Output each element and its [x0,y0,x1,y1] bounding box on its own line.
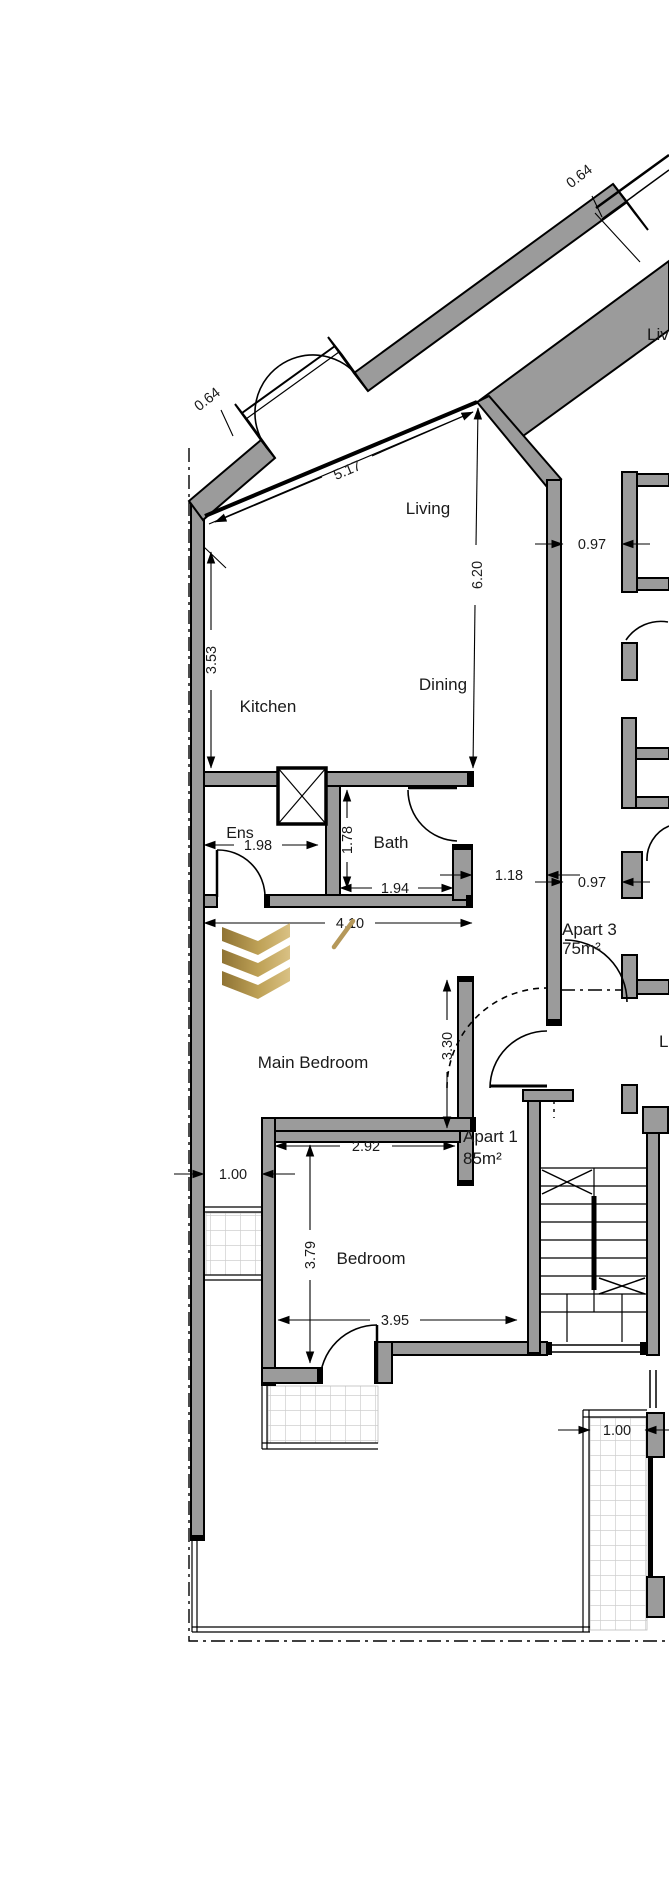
topright-glazing-1 [596,155,669,208]
label-dining: Dining [419,675,467,694]
bedroom-door-swing [320,1325,377,1382]
hall-north-wall [265,895,472,907]
dim-bedroom-span: 3.95 [381,1313,409,1329]
stair-east-wall [647,1107,659,1355]
apart3-stub-3 [622,643,637,680]
bath-east-wall [453,845,472,900]
label-ens: Ens [226,825,254,842]
ens-door-swing [217,850,265,897]
wall-cap [547,1019,561,1025]
label-bedroom: Bedroom [337,1249,406,1268]
label-apart3-name: Apart 3 [562,920,617,939]
apart3-stub-2 [637,578,669,590]
wall-cap [191,1535,204,1540]
dim-terrace-strip: 1.00 [603,1423,631,1439]
bath-door-swing [408,790,457,841]
dim-entry-wall: 3.30 [440,1032,456,1060]
right-terrace-hatch [590,1418,647,1630]
dim-gap-lower: 0.97 [578,875,606,891]
shaft-side-wall [326,786,340,895]
stair-west-wall [528,1101,540,1353]
floor-plan-page: 0.64 0.64 5.17 3.53 6.20 0.97 1.98 1.78 … [0,0,669,1899]
label-neighbor-living-mid: Li [659,1032,669,1051]
bedroom-terrace-hatch [268,1386,378,1443]
entry-step-wall [523,1090,573,1101]
wall-cap [467,772,473,786]
dim-hall-gap: 1.18 [495,868,523,884]
party-wall-vertical [547,480,561,1025]
bedroom-south-wall [262,1368,322,1383]
apartment-entry-door-swing [490,1031,547,1088]
apart3-stub-8 [622,1085,637,1113]
floor-plan-svg: 0.64 0.64 5.17 3.53 6.20 0.97 1.98 1.78 … [0,0,669,1899]
apart3-stub-7 [637,980,669,994]
ventilation-shaft [278,768,326,824]
apart3-wall-mid [622,718,636,808]
dim-living-length: 6.20 [470,561,486,590]
wall-cap [640,1342,647,1355]
label-kitchen: Kitchen [240,697,297,716]
terrace-east-wall [648,1457,653,1577]
bedroom-west-wall [262,1118,275,1385]
main-bedroom-south-wall [262,1118,475,1131]
kitchen-south-wall-left [204,772,278,786]
label-apart1-area: 85m² [463,1149,502,1168]
wall-cap [466,895,472,907]
dim-side-strip: 1.00 [219,1167,247,1183]
label-main-bedroom: Main Bedroom [258,1053,369,1072]
apart3-stub-6 [622,852,642,898]
south-hall-wall [392,1342,547,1355]
apart3-stub-1 [637,474,669,486]
apart3-bay-wall [622,472,637,592]
ens-south-wall-left [204,895,217,907]
label-neighbor-living-top: Liv [647,325,669,344]
northwest-wall-band-sw [189,440,275,520]
dim-gap-upper: 0.97 [578,537,606,553]
dim-bath-depth: 1.78 [340,826,356,854]
label-apart1-name: Apart 1 [463,1127,518,1146]
stair-corner-block [643,1107,668,1133]
wall-cap [458,977,473,982]
wall-cap [453,845,472,850]
terrace-pillar-upper [647,1413,664,1457]
dim-kitchen-side: 3.53 [204,646,220,674]
terrace-pillar-lower [647,1577,664,1617]
dim-offset-top: 0.64 [564,162,596,192]
label-apart3-area: 75m² [562,939,601,958]
porch-pillar-right [328,337,368,391]
side-balcony-hatch [206,1213,262,1275]
logo-chevrons [222,923,290,999]
apart3-stub-4 [636,748,669,759]
wall-cap [547,1342,552,1355]
apart3-door-swing-2 [647,826,669,861]
entrance-double-door-leaf-left [255,366,279,452]
terraces [192,1207,647,1632]
kitchen-south-wall-right [326,772,473,786]
label-bath: Bath [374,833,409,852]
west-wall [191,505,204,1540]
dim-offset-entrance: 0.64 [192,385,224,415]
wall-cap [458,1180,473,1185]
porch-back-glazing-2 [246,352,339,419]
staircase [540,1168,647,1342]
apart3-door-swing-1 [626,621,668,640]
dim-bedroom-depth: 3.79 [303,1241,319,1269]
label-living: Living [406,499,450,518]
dim-bath-width: 1.94 [381,881,409,897]
dim-bedroom-width: 2.92 [352,1139,380,1155]
apart3-wall-low [622,955,637,998]
apart3-stub-5 [636,797,669,808]
brand-watermark [222,921,353,999]
